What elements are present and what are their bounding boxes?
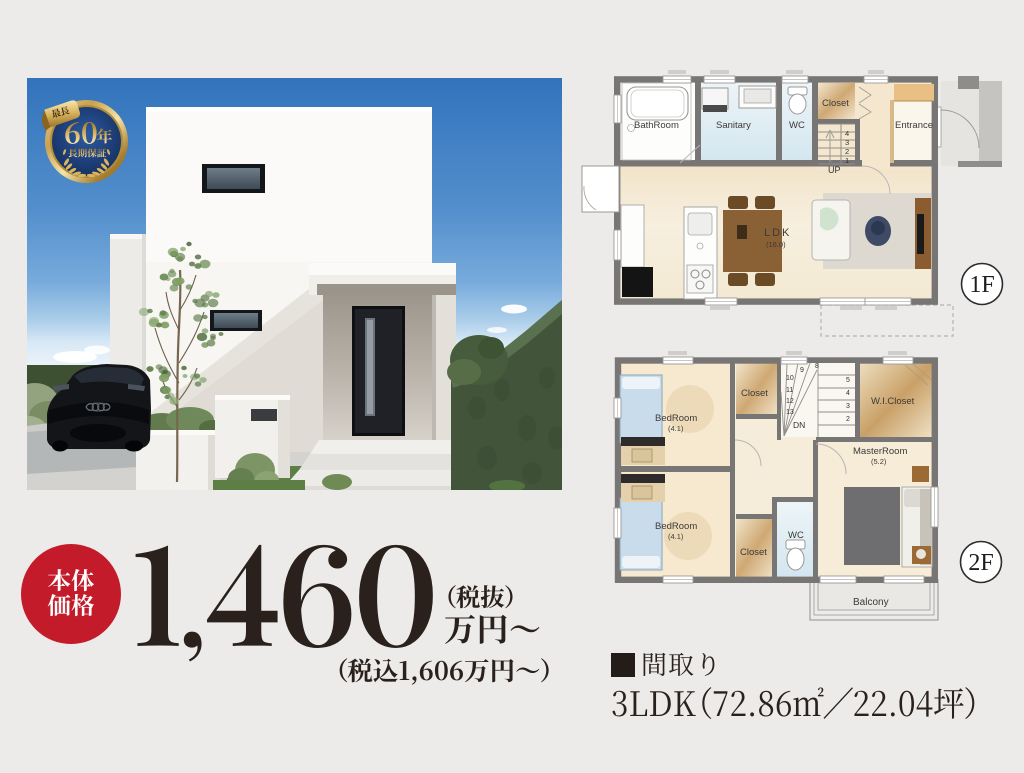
svg-text:BedRoom: BedRoom [655,413,697,424]
svg-text:(4.1): (4.1) [668,424,684,433]
svg-text:Closet: Closet [740,547,767,558]
svg-text:1F: 1F [969,272,994,298]
svg-text:3: 3 [846,403,850,410]
svg-text:MasterRoom: MasterRoom [853,446,907,457]
svg-text:W.I.Closet: W.I.Closet [871,396,915,407]
svg-text:4: 4 [845,129,849,138]
svg-text:BathRoom: BathRoom [634,120,679,131]
svg-text:(4.1): (4.1) [668,532,684,541]
svg-text:LDK: LDK [764,227,791,239]
svg-text:Closet: Closet [822,98,849,109]
svg-text:9: 9 [800,367,804,374]
svg-text:Balcony: Balcony [853,597,889,608]
svg-text:DN: DN [793,420,805,430]
svg-text:4: 4 [846,390,850,397]
svg-text:WC: WC [789,120,805,131]
svg-text:2: 2 [846,416,850,423]
svg-text:WC: WC [788,530,804,541]
svg-text:5: 5 [846,377,850,384]
svg-text:(16.0): (16.0) [766,240,786,249]
svg-text:1: 1 [845,156,849,165]
svg-text:12: 12 [786,398,794,405]
svg-text:8: 8 [815,363,819,370]
svg-text:Entrance: Entrance [895,120,933,131]
svg-text:2: 2 [845,147,849,156]
svg-text:BedRoom: BedRoom [655,521,697,532]
svg-text:3: 3 [845,138,849,147]
svg-text:11: 11 [786,387,793,394]
svg-text:UP: UP [828,165,841,175]
svg-text:(5.2): (5.2) [871,457,887,466]
svg-text:2F: 2F [968,550,993,576]
svg-text:Sanitary: Sanitary [716,120,751,131]
svg-text:Closet: Closet [741,388,768,399]
svg-text:10: 10 [786,375,794,382]
svg-text:13: 13 [786,409,794,416]
